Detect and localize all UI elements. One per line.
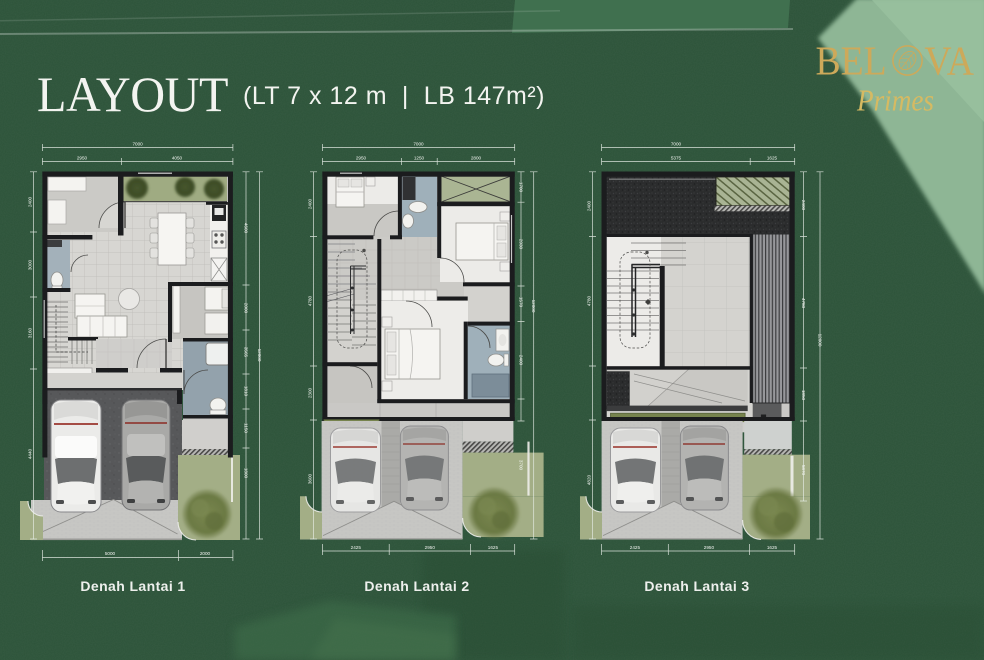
svg-text:5000: 5000 [105,551,116,556]
svg-text:VA: VA [924,38,974,84]
svg-text:2400: 2400 [518,355,523,366]
svg-text:4440: 4440 [28,448,33,459]
svg-text:3000: 3000 [28,259,33,270]
svg-text:2000: 2000 [243,303,248,314]
svg-text:2425: 2425 [630,545,641,550]
svg-text:12000: 12000 [817,334,822,347]
svg-text:1250: 1250 [414,156,425,161]
svg-text:BEL: BEL [815,38,886,84]
svg-text:7000: 7000 [413,142,424,147]
svg-text:1625: 1625 [767,545,778,550]
svg-text:2400: 2400 [28,196,33,207]
svg-text:3700: 3700 [518,460,523,471]
svg-text:1810: 1810 [243,386,248,397]
svg-text:2800: 2800 [471,156,482,161]
svg-text:1800: 1800 [243,468,248,479]
svg-text:4600: 4600 [243,223,248,234]
svg-text:2400: 2400 [801,200,806,211]
svg-text:Primes: Primes [856,83,934,118]
svg-text:1850: 1850 [801,390,806,401]
svg-text:2300: 2300 [308,387,313,398]
svg-text:1150: 1150 [243,423,248,433]
svg-text:4050: 4050 [172,156,183,161]
svg-text:7000: 7000 [132,142,143,147]
svg-text:1700: 1700 [518,182,523,193]
svg-text:7000: 7000 [671,142,682,147]
svg-text:2950: 2950 [704,545,715,550]
svg-text:2950: 2950 [425,545,436,550]
svg-text:2400: 2400 [308,198,313,209]
svg-text:2400: 2400 [587,200,592,211]
svg-text:4780: 4780 [587,295,592,306]
svg-text:5375: 5375 [671,156,682,161]
svg-text:4780: 4780 [308,295,313,306]
svg-text:2425: 2425 [351,545,362,550]
svg-text:4780: 4780 [801,298,806,309]
svg-text:2930: 2930 [518,239,523,250]
svg-text:1625: 1625 [488,545,499,550]
svg-text:3600: 3600 [308,473,313,484]
svg-text:2950: 2950 [77,156,88,161]
svg-text:5870: 5870 [801,465,806,476]
svg-text:4820: 4820 [587,474,592,485]
svg-text:2000: 2000 [200,551,211,556]
svg-text:1625: 1625 [767,156,778,161]
svg-text:3565: 3565 [243,347,248,358]
svg-text:12000: 12000 [257,349,262,362]
svg-text:2950: 2950 [356,156,367,161]
svg-text:1570: 1570 [518,297,523,308]
svg-text:3160: 3160 [28,327,33,338]
svg-text:12000: 12000 [531,300,536,313]
